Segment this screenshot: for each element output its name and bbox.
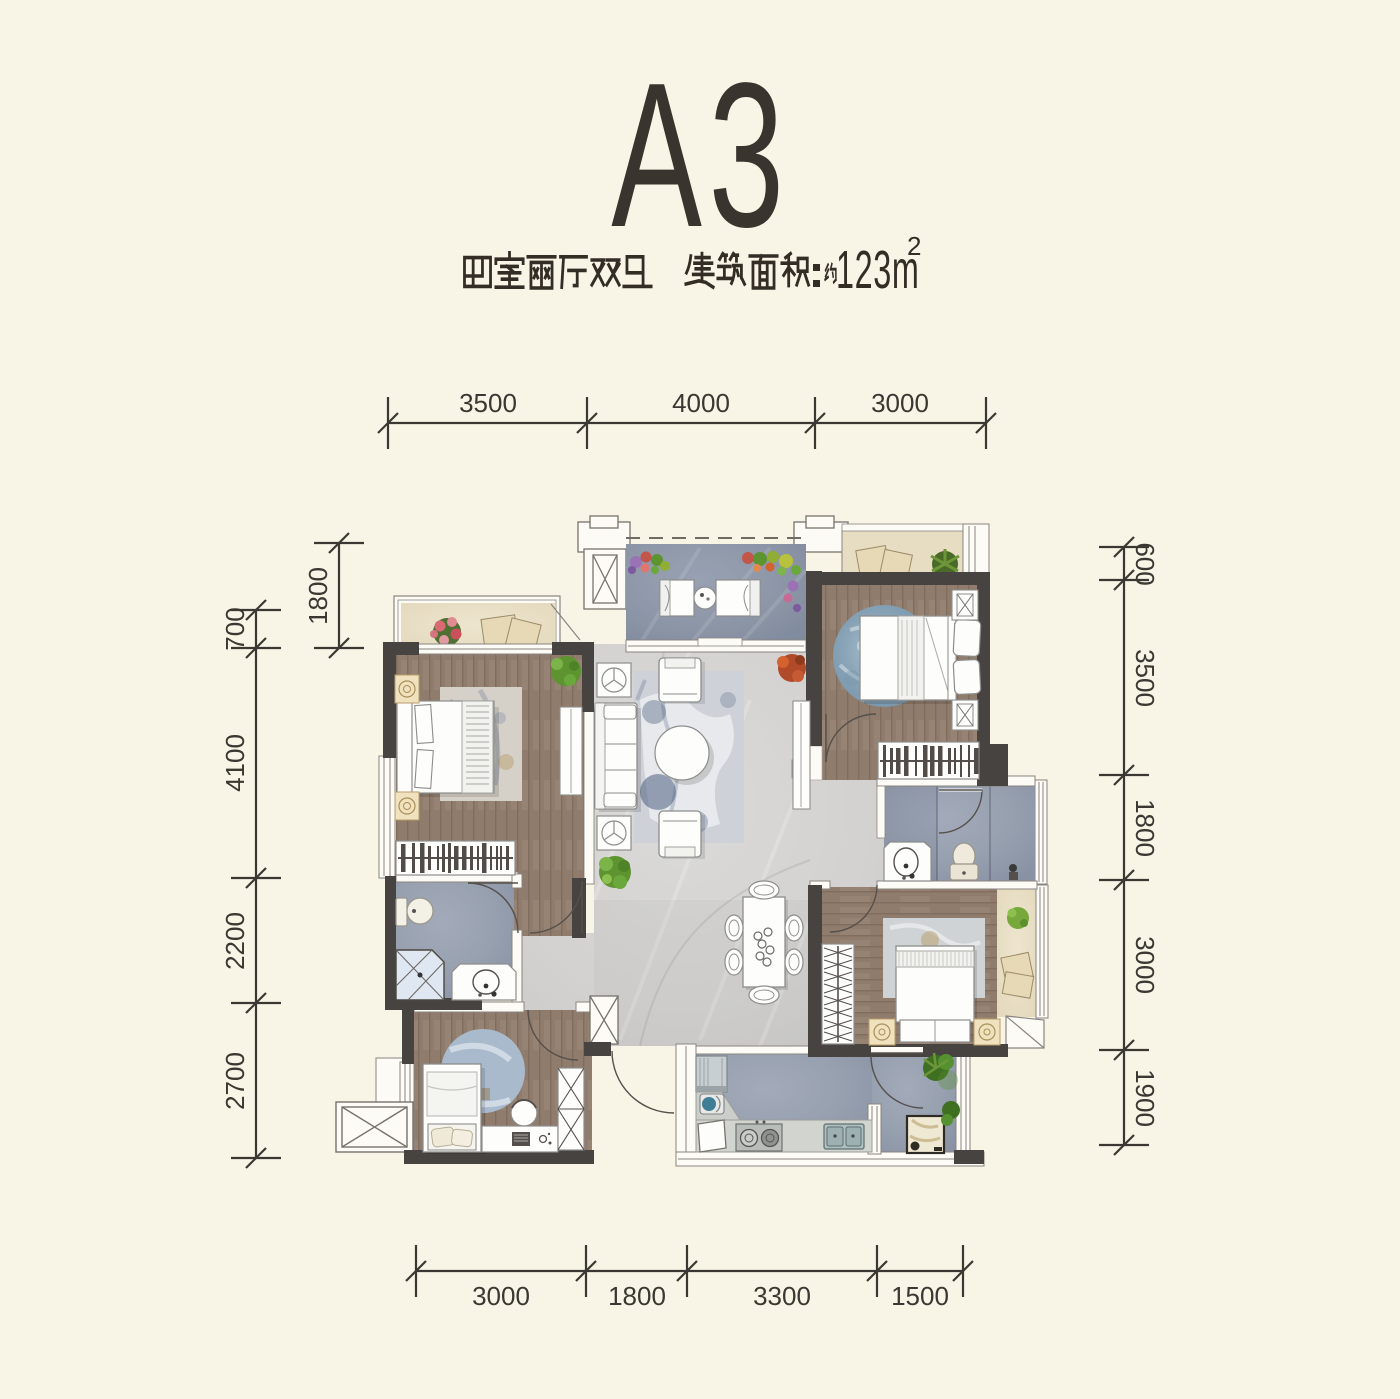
svg-text:3000: 3000 <box>871 388 929 418</box>
svg-text:A3: A3 <box>611 40 790 270</box>
svg-text:700: 700 <box>220 607 250 650</box>
svg-text:1500: 1500 <box>891 1281 949 1311</box>
svg-text:1800: 1800 <box>1130 799 1160 857</box>
svg-text:2700: 2700 <box>220 1052 250 1110</box>
svg-text:1800: 1800 <box>303 567 333 625</box>
svg-text:3500: 3500 <box>1130 649 1160 707</box>
svg-text:1800: 1800 <box>608 1281 666 1311</box>
svg-text:2200: 2200 <box>220 912 250 970</box>
svg-text:1900: 1900 <box>1130 1069 1160 1127</box>
svg-text:3300: 3300 <box>753 1281 811 1311</box>
svg-text:3000: 3000 <box>472 1281 530 1311</box>
svg-text:600: 600 <box>1130 542 1160 585</box>
svg-text:4100: 4100 <box>220 734 250 792</box>
svg-text:3500: 3500 <box>459 388 517 418</box>
svg-text:3000: 3000 <box>1130 936 1160 994</box>
svg-text:2: 2 <box>907 231 921 261</box>
svg-text:4000: 4000 <box>672 388 730 418</box>
